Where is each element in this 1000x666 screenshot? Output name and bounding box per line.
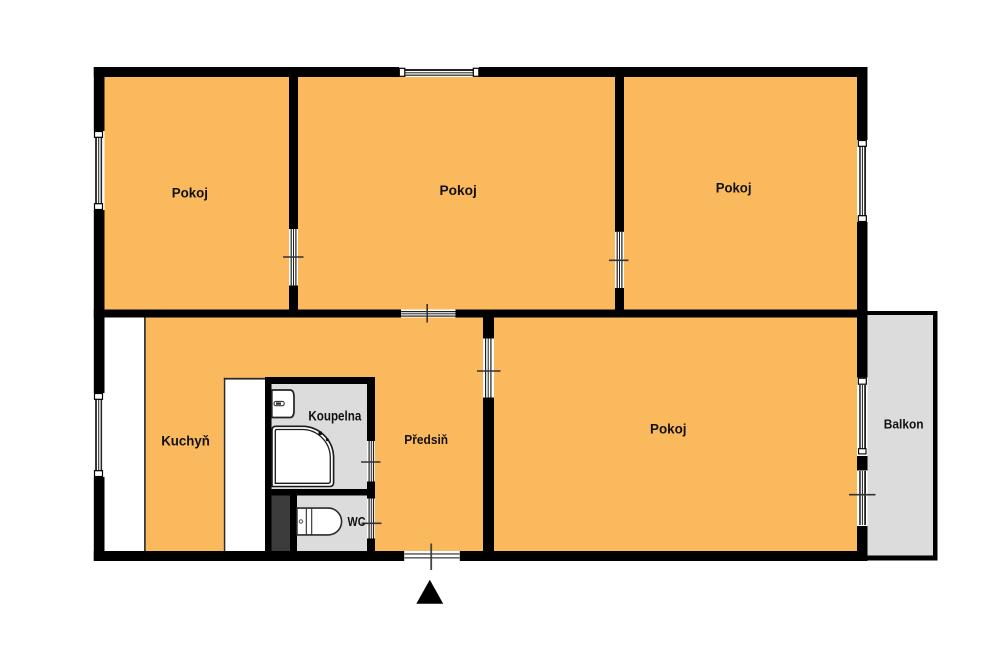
svg-text:Předsiň: Předsiň xyxy=(404,432,448,447)
svg-text:Kuchyň: Kuchyň xyxy=(161,432,210,448)
svg-text:Pokoj: Pokoj xyxy=(440,183,477,198)
svg-text:Balkon: Balkon xyxy=(884,417,924,432)
svg-text:Koupelna: Koupelna xyxy=(308,407,361,423)
svg-text:WC: WC xyxy=(348,514,366,529)
svg-text:Pokoj: Pokoj xyxy=(172,186,208,201)
svg-text:Pokoj: Pokoj xyxy=(716,180,752,195)
svg-text:Pokoj: Pokoj xyxy=(650,421,687,436)
